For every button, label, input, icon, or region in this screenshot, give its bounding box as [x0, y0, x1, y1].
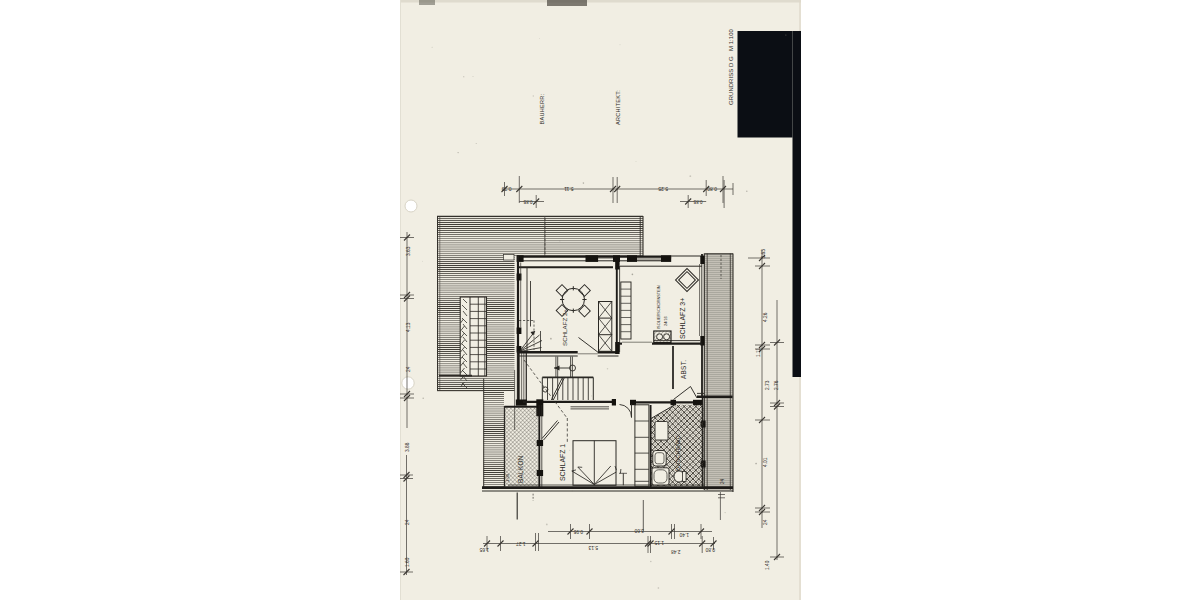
svg-text:5.25: 5.25 [658, 186, 668, 192]
svg-text:3.60: 3.60 [634, 528, 644, 533]
svg-text:0.85: 0.85 [523, 199, 532, 204]
svg-text:2.48: 2.48 [671, 549, 681, 554]
svg-text:SCHLAFZ 1: SCHLAFZ 1 [559, 444, 566, 481]
svg-text:BALKON: BALKON [517, 455, 524, 483]
svg-text:5.13: 5.13 [588, 545, 598, 550]
svg-text:1.60: 1.60 [405, 557, 410, 567]
svg-text:SCHLAFZ 3+: SCHLAFZ 3+ [679, 298, 686, 339]
svg-text:ISOLIERSCHORNSTEIN: ISOLIERSCHORNSTEIN [656, 285, 661, 329]
svg-text:2.76: 2.76 [774, 380, 779, 390]
svg-text:BAUHERR:: BAUHERR: [539, 93, 545, 124]
svg-text:24: 24 [405, 519, 410, 525]
svg-text:0.80: 0.80 [707, 186, 717, 192]
svg-text:1.27: 1.27 [516, 541, 526, 546]
svg-text:1.65: 1.65 [479, 547, 489, 552]
svg-text:24: 24 [406, 366, 411, 372]
svg-text:DUSCHE/WC: DUSCHE/WC [675, 435, 681, 471]
svg-text:GRUNDRISS D G M 1:100: GRUNDRISS D G M 1:100 [728, 28, 734, 105]
svg-text:0.95: 0.95 [573, 529, 583, 534]
svg-text:3.63: 3.63 [761, 249, 766, 259]
svg-text:24: 24 [720, 478, 725, 484]
svg-text:1.40: 1.40 [679, 532, 689, 537]
svg-text:1.15: 1.15 [654, 540, 664, 545]
svg-text:1.40: 1.40 [765, 560, 770, 570]
svg-text:4.01: 4.01 [763, 457, 768, 467]
svg-text:5.11: 5.11 [564, 186, 574, 192]
svg-text:ARCHITEKT:: ARCHITEKT: [615, 90, 621, 125]
svg-text:24: 24 [763, 519, 768, 525]
svg-text:1.00: 1.00 [505, 473, 510, 482]
svg-text:0.80: 0.80 [705, 547, 715, 552]
svg-text:4.26: 4.26 [763, 312, 768, 322]
svg-text:2.73: 2.73 [765, 380, 770, 390]
svg-text:3.63: 3.63 [406, 246, 411, 256]
svg-text:24/16: 24/16 [663, 316, 668, 326]
svg-text:ABST.: ABST. [680, 360, 687, 379]
svg-text:0.70: 0.70 [502, 186, 512, 192]
svg-text:0.85: 0.85 [693, 199, 702, 204]
svg-text:3.88: 3.88 [405, 442, 410, 452]
svg-text:4.13: 4.13 [406, 322, 411, 332]
svg-text:1.11: 1.11 [756, 348, 761, 357]
